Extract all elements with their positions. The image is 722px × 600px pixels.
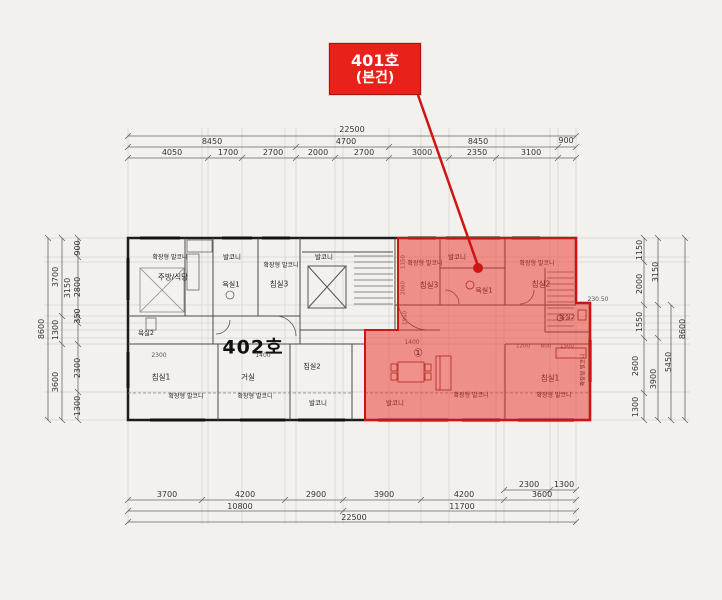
floor-plan-page: 402호 22500845047008450900405017002700200…	[0, 0, 722, 600]
callout-box-401: 401호 (본건)	[329, 43, 421, 95]
callout-unit-number: 401호	[351, 52, 399, 70]
callout-subject-tag: (본건)	[356, 70, 395, 86]
callout-leader-dot	[473, 263, 483, 273]
